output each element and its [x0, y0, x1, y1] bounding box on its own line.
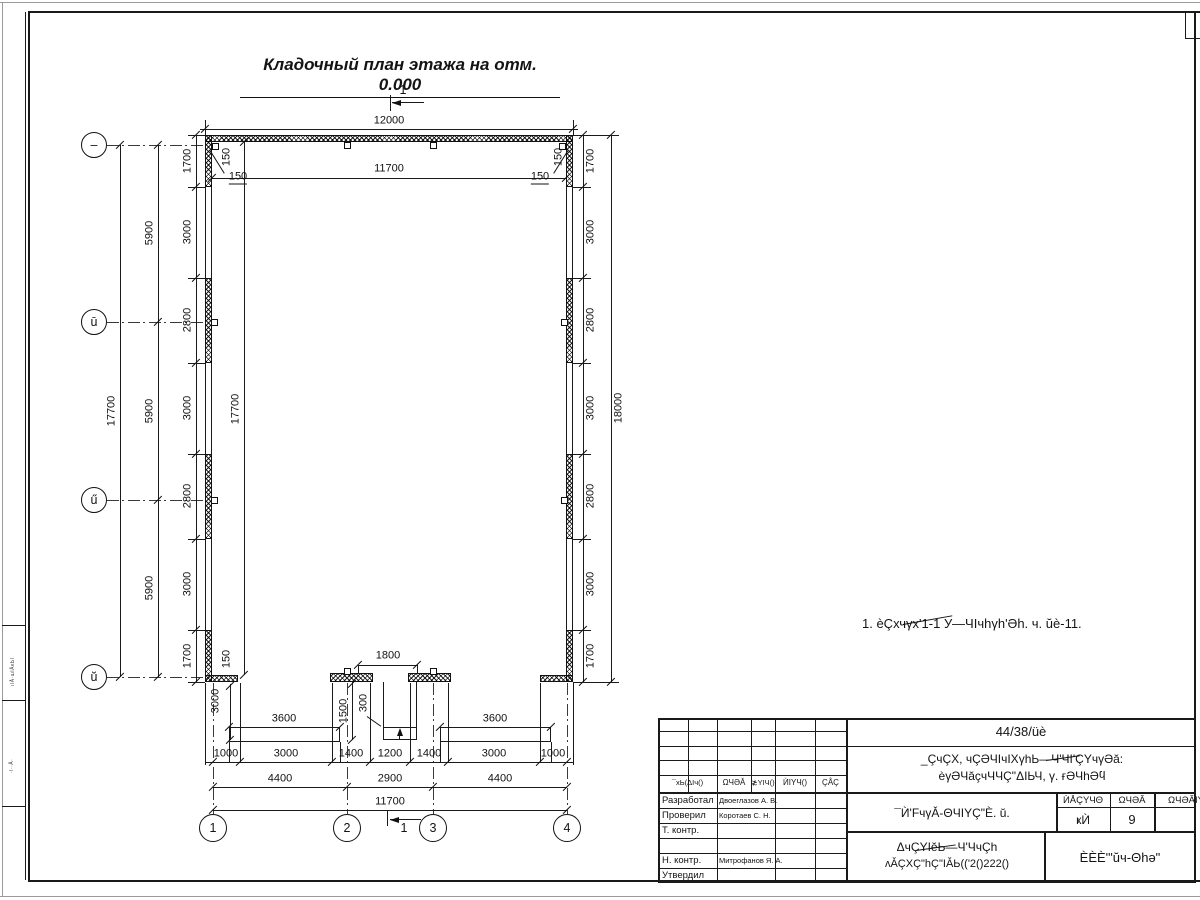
titleblock-sheet-title: ¯Ѝ'FчγǍ-ΘЧIΥÇ"È. ŭ.: [848, 806, 1056, 820]
dim-label: 3000: [586, 220, 597, 244]
titleblock-rev-header-list: ΩЧƏĂ: [717, 778, 751, 787]
dim-label: 2800: [183, 308, 194, 332]
window-line: [205, 539, 206, 630]
titleblock-col-line: [815, 718, 816, 883]
extension-line: [188, 135, 205, 136]
titleblock-row-line: [658, 838, 846, 839]
dim-label: 4400: [488, 774, 512, 785]
dim-label: 5900: [145, 576, 156, 600]
titleblock-border: [658, 718, 660, 883]
extension-line: [188, 454, 205, 455]
frame-border: [28, 11, 1200, 13]
section-mark-line: [387, 811, 388, 826]
wall-segment: [566, 135, 573, 187]
axis-line-vertical: [567, 683, 568, 814]
extension-line: [573, 187, 591, 188]
dim-label: 2800: [586, 484, 597, 508]
dim-label: 1200: [378, 749, 402, 760]
dim-line: [230, 684, 231, 740]
dim-label: 3000: [183, 220, 194, 244]
window-line: [211, 363, 212, 454]
corner-code-box: [1185, 12, 1186, 39]
extension-line: [573, 278, 591, 279]
titleblock-line: [1044, 833, 1046, 883]
dim-line: [352, 682, 353, 740]
section-arrow-icon: [390, 817, 399, 823]
titleblock-row-line: [658, 853, 846, 854]
dim-label: 18000: [614, 393, 625, 424]
dim-label: 150: [222, 650, 233, 668]
extension-line: [188, 539, 205, 540]
dim-line: [213, 787, 567, 788]
extension-line: [573, 683, 574, 765]
titleblock-stage-value: ҝЍ: [1056, 813, 1110, 827]
dim-label: 3600: [483, 714, 507, 725]
section-mark-label-top: 1: [400, 83, 407, 97]
dim-line: [244, 142, 245, 675]
titleblock-doc-code: 44/38/üè: [848, 724, 1194, 739]
titleblock-project-line1: _ÇчÇХ, чÇƏЧIчIХγhЬ—Ч'ЧI'ÇΥчγƏă:: [852, 752, 1192, 766]
extension-line: [188, 682, 205, 683]
titleblock-doc-type-line2: ʌǍÇХÇ"hÇ"IǍЬ(('2()222(): [850, 858, 1044, 870]
dim-label: 1000: [214, 749, 238, 760]
titleblock-sheet-number: 9: [1110, 812, 1154, 827]
titleblock-rev-header-ndoc: ≵ΥIЧ(): [751, 778, 775, 787]
dim-label: 3600: [272, 714, 296, 725]
dim-label: 11700: [374, 164, 404, 175]
window-line: [566, 187, 567, 278]
margin-strip-divider: [2, 806, 25, 807]
corner-code-box: [1185, 38, 1200, 39]
titleblock-name: Коротаев С. Н.: [719, 811, 775, 820]
porch-outline: [229, 727, 340, 742]
margin-strip-divider: [2, 625, 25, 626]
extension-line: [188, 187, 205, 188]
dim-line: [120, 145, 121, 677]
margin-caption-2: ·ǀ··Ă·: [9, 737, 15, 773]
column-mark: [211, 319, 218, 326]
dim-label: 3000: [183, 396, 194, 420]
titleblock-row-line: [658, 775, 846, 776]
titleblock-line: [846, 718, 848, 883]
wall-segment: [205, 135, 573, 142]
column-mark: [212, 143, 219, 150]
paper-edge: [0, 896, 1200, 897]
dim-label: 17700: [107, 396, 118, 427]
titleblock-role: Проверил: [662, 810, 716, 821]
section-arrow-icon: [392, 100, 401, 106]
extension-line: [410, 683, 411, 763]
extension-line: [188, 630, 205, 631]
window-line: [205, 363, 206, 454]
extension-line: [573, 363, 591, 364]
extension-line: [205, 683, 206, 765]
titleblock-sheet-header: ΩЧƏĂ: [1110, 795, 1154, 806]
landing-line: [383, 682, 384, 727]
titleblock-role: Утвердил: [662, 870, 716, 881]
dim-label: 150: [222, 148, 233, 166]
dim-label: 17700: [231, 394, 242, 425]
porch-outline: [440, 727, 551, 742]
dim-label: 2800: [586, 308, 597, 332]
titleblock-project-line2: èγƏЧăçчЧЧÇ"ΔIЬЧ, γ. ғƏЧhƏϥ: [852, 769, 1192, 783]
dim-line: [196, 135, 197, 682]
dim-label: 5900: [145, 399, 156, 423]
titleblock-role: Н. контр.: [662, 855, 716, 866]
landing-line: [416, 682, 417, 727]
window-line: [572, 363, 573, 454]
dim-label: 1700: [183, 644, 194, 668]
extension-line: [573, 682, 619, 683]
extension-line: [240, 683, 241, 763]
titleblock-line: [1056, 807, 1196, 808]
frame-border: [1194, 11, 1196, 882]
dim-line: [213, 810, 567, 811]
titleblock-col-line: [717, 718, 718, 883]
axis-bubble-left: –: [81, 132, 107, 158]
extension-line: [358, 665, 359, 674]
leader-line: [367, 716, 381, 727]
column-mark: [430, 142, 437, 149]
frame-border: [28, 11, 30, 882]
axis-bubble-bottom: 1: [199, 814, 227, 842]
dim-label: 150: [531, 172, 549, 185]
titleblock-role: Разработал: [662, 795, 716, 806]
architectural-drawing-sheet: { "title": "Кладочный план этажа на отм.…: [0, 0, 1200, 900]
extension-line: [573, 120, 574, 135]
dim-label: 2900: [378, 774, 402, 785]
up-arrow-icon: [397, 728, 403, 736]
dim-label: 3000: [183, 572, 194, 596]
extension-line: [448, 683, 449, 763]
dim-label: 1500: [339, 699, 350, 723]
dim-label: 1700: [586, 149, 597, 173]
titleblock-row-line: [658, 808, 846, 809]
dim-label: 1400: [417, 749, 441, 760]
dim-label: 150: [554, 148, 565, 166]
dim-label: 3000: [586, 396, 597, 420]
wall-segment: [330, 673, 373, 682]
extension-line: [370, 683, 371, 763]
dim-line: [212, 178, 566, 179]
window-line: [211, 539, 212, 630]
axis-bubble-left: ū: [81, 309, 107, 335]
extension-line: [332, 683, 333, 763]
titleblock-rev-header-data: ÇÅÇ: [815, 778, 846, 787]
dim-line: [158, 145, 159, 677]
titleblock-line: [846, 831, 1196, 833]
extension-line: [188, 278, 205, 279]
titleblock-line: [1056, 793, 1058, 833]
titleblock-line: [1110, 793, 1111, 833]
section-mark-line: [390, 95, 391, 111]
dim-label: 1700: [586, 644, 597, 668]
dim-line: [200, 129, 578, 130]
titleblock-name: Двоеглазов А. В.: [719, 796, 775, 805]
dim-label: 12000: [374, 116, 405, 127]
dim-label: 1700: [183, 149, 194, 173]
titleblock-line: [846, 746, 1196, 747]
titleblock-role: Т. контр.: [662, 825, 716, 836]
dim-label: 1800: [376, 651, 400, 662]
titleblock-stage-header: ЍÅÇΥЧΘ: [1056, 795, 1110, 806]
titleblock-border: [658, 881, 1196, 883]
titleblock-row-line: [658, 823, 846, 824]
titleblock-organization: ÈÈÈ'"ŭч-Θhə": [1046, 850, 1194, 865]
titleblock-line: [658, 792, 1196, 794]
dim-label: 11700: [375, 797, 405, 808]
titleblock-col-line: [751, 718, 752, 792]
extension-line: [573, 454, 591, 455]
axis-bubble-bottom: 3: [419, 814, 447, 842]
extension-line: [573, 539, 591, 540]
axis-bubble-bottom: 4: [553, 814, 581, 842]
dim-label: 3000: [211, 689, 222, 713]
note-text: 1. èÇхчγх'1-1 У—ЧIчhγh'Əh. ч. ŭè-11.: [862, 616, 1082, 631]
column-mark: [561, 319, 568, 326]
window-line: [205, 187, 206, 278]
column-mark: [344, 668, 351, 675]
titleblock-row-line: [658, 746, 846, 747]
axis-bubble-left: ű: [81, 487, 107, 513]
column-mark: [211, 497, 218, 504]
titleblock-border: [658, 718, 1196, 720]
extension-line: [573, 630, 591, 631]
dim-label: 300: [359, 694, 370, 712]
margin-strip-divider: [2, 700, 25, 701]
dim-line: [205, 762, 573, 763]
window-line: [566, 363, 567, 454]
extension-line: [573, 135, 619, 136]
dim-label: 3000: [274, 749, 298, 760]
extension-line: [188, 363, 205, 364]
titleblock-row-line: [658, 731, 846, 732]
margin-strip-line: [25, 12, 26, 880]
dim-line: [358, 665, 417, 666]
titleblock-row-line: [658, 760, 846, 761]
titleblock-doc-type-line1: ΔчÇΥIĕЬ—Ч'ЧчÇh: [850, 840, 1044, 854]
dim-label: 3000: [586, 572, 597, 596]
column-mark: [430, 668, 437, 675]
window-line: [211, 187, 212, 278]
paper-edge: [2, 2, 3, 897]
column-mark: [344, 142, 351, 149]
titleblock-col-line: [688, 718, 689, 792]
column-mark: [561, 497, 568, 504]
dim-label: 1400: [339, 749, 363, 760]
axis-bubble-left: ŭ: [81, 664, 107, 690]
extension-line: [205, 120, 206, 135]
margin-caption-1: ıǀĂ·шІĂĸЬǀ: [10, 640, 16, 686]
window-line: [566, 539, 567, 630]
dim-label: 4400: [268, 774, 292, 785]
titleblock-rev-header-podp: ЍIΥЧ(): [775, 778, 815, 787]
dim-label: 1000: [541, 749, 565, 760]
paper-edge: [0, 2, 1200, 3]
window-line: [572, 539, 573, 630]
wall-segment: [540, 675, 573, 682]
extension-line: [417, 665, 418, 674]
titleblock-line: [1154, 793, 1156, 833]
titleblock-row-line: [658, 868, 846, 869]
titleblock-name: Митрофанов Я. А.: [719, 856, 775, 865]
dim-label: 2800: [183, 484, 194, 508]
window-line: [572, 187, 573, 278]
dim-label: 5900: [145, 221, 156, 245]
sheet: Кладочный план этажа на отм. 0.000 1. èÇ…: [0, 0, 1200, 900]
section-mark-label-bottom: 1: [401, 821, 408, 835]
dim-label: 3000: [482, 749, 506, 760]
axis-bubble-bottom: 2: [333, 814, 361, 842]
